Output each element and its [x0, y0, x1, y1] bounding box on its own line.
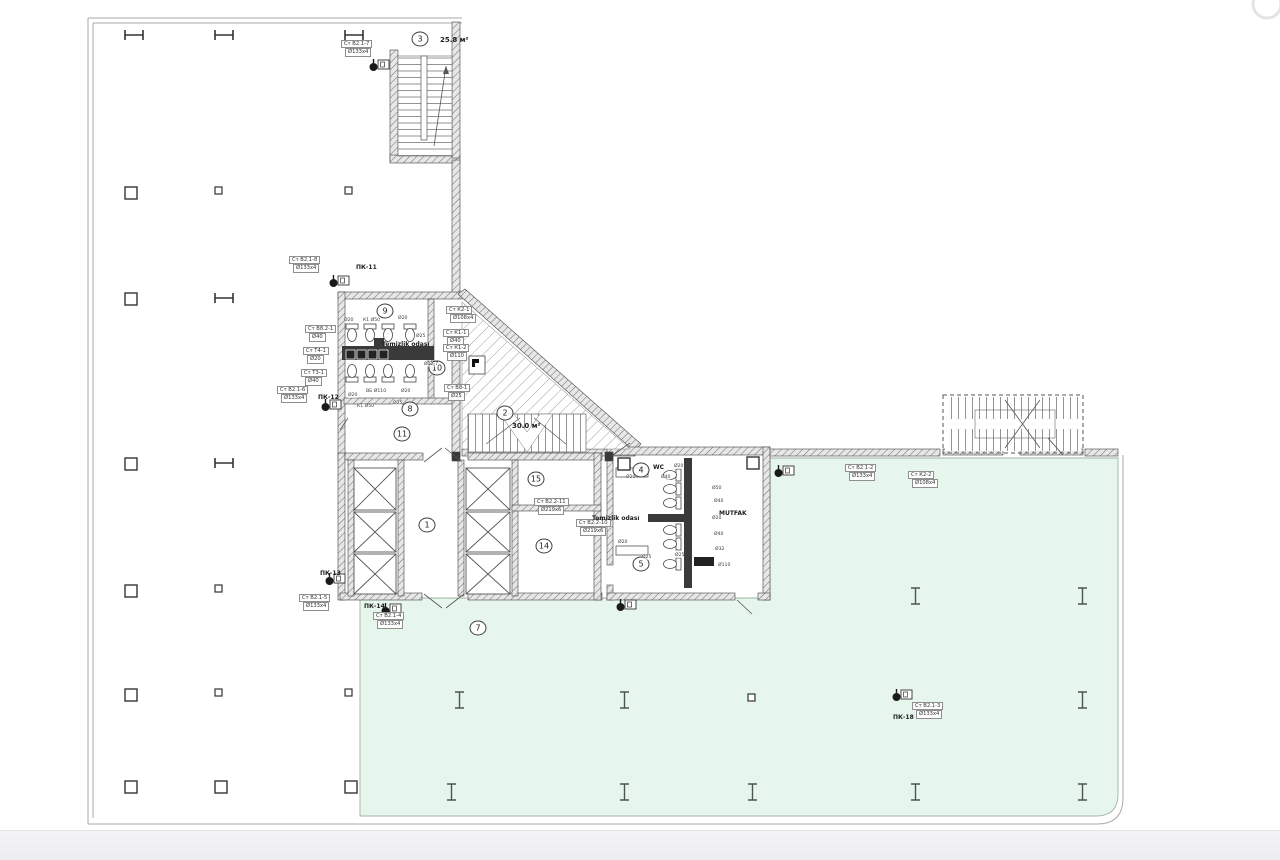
toilet-fixture [346, 324, 358, 342]
toilet-fixture [346, 365, 358, 383]
column-small-square [345, 187, 352, 194]
toilet-fixture [364, 365, 376, 383]
fire-hose-cabinet-icon [370, 59, 390, 71]
column-square [345, 781, 357, 793]
column-small-square [215, 585, 222, 592]
stair-room2 [462, 302, 630, 452]
toilet-fixture [664, 524, 682, 536]
column-square [125, 689, 137, 701]
urinal-fixture [346, 350, 355, 359]
column-square [618, 458, 630, 470]
toilet-fixture [404, 324, 416, 342]
column-small-square [748, 694, 755, 701]
corner-artifact [1253, 0, 1280, 18]
column-h-beam [215, 30, 233, 40]
toilet-fixture [664, 483, 682, 495]
column-small-square [345, 689, 352, 696]
toilet-fixture [664, 558, 682, 570]
fire-hose-cabinet-icon [326, 573, 346, 585]
toilet-fixture [404, 365, 416, 383]
stair-right-exterior [943, 395, 1083, 455]
column-h-beam [125, 30, 143, 40]
floor-plan-drawing [0, 0, 1280, 860]
elevator-shafts [354, 468, 510, 594]
column-square [125, 585, 137, 597]
toilet-fixture [664, 469, 682, 481]
urinal-fixture [368, 350, 377, 359]
stair-top [398, 56, 452, 156]
urinal-fixture [379, 350, 388, 359]
column-square [125, 458, 137, 470]
column-small-square [215, 187, 222, 194]
toilet-fixture [382, 365, 394, 383]
toilet-fixture [664, 497, 682, 509]
column-h-beam [215, 458, 233, 468]
column-small-square [215, 689, 222, 696]
column-h-beam [215, 293, 233, 303]
urinal-fixture [357, 350, 366, 359]
toilet-fixture [664, 538, 682, 550]
fire-hose-cabinet-icon [330, 275, 350, 287]
column-square [125, 781, 137, 793]
floor-plan-viewport[interactable]: 325.8 м²230.0 м²91081111514457Ст В2.1-7Ø… [0, 0, 1280, 860]
bottom-margin-band [0, 830, 1280, 860]
column-square [125, 187, 137, 199]
column-square [215, 781, 227, 793]
fire-hose-cabinet-icon [322, 399, 342, 411]
column-h-beam [345, 30, 363, 40]
column-square [125, 293, 137, 305]
column-square [747, 457, 759, 469]
